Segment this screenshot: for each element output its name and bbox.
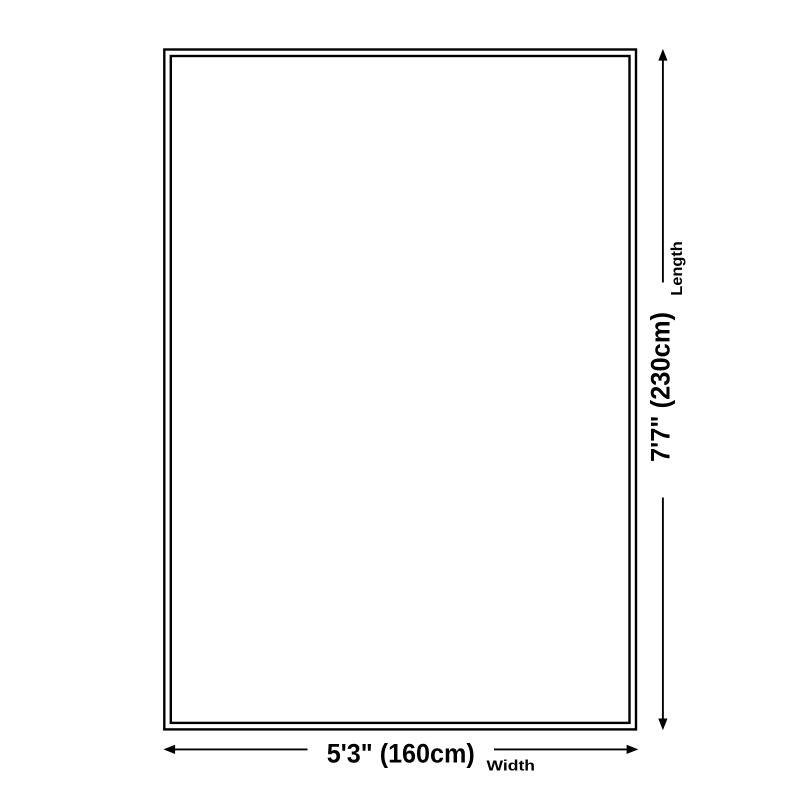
svg-text:5'3" (160cm): 5'3" (160cm) bbox=[327, 738, 475, 768]
svg-text:Length: Length bbox=[669, 241, 686, 296]
svg-text:7'7" (230cm): 7'7" (230cm) bbox=[645, 312, 675, 462]
svg-text:Width: Width bbox=[487, 758, 536, 775]
